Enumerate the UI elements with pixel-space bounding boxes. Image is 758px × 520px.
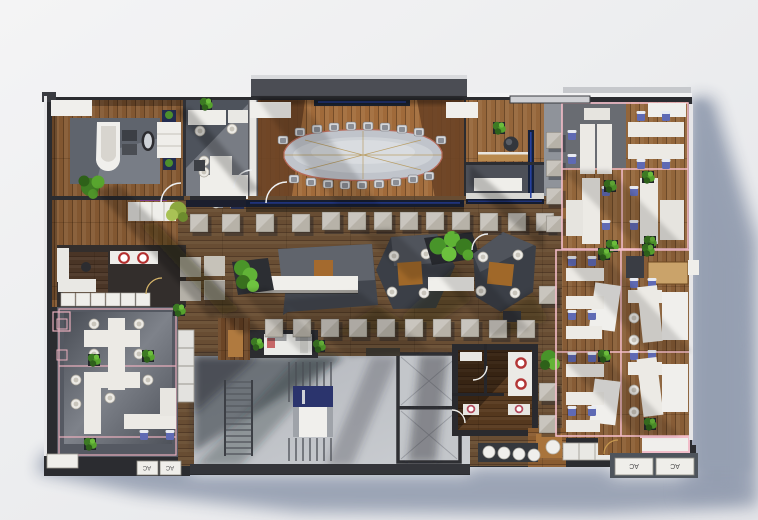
svg-text:AC: AC bbox=[142, 464, 151, 470]
svg-text:AC: AC bbox=[165, 464, 174, 470]
svg-text:AC: AC bbox=[629, 462, 639, 469]
svg-text:AC: AC bbox=[670, 462, 680, 469]
